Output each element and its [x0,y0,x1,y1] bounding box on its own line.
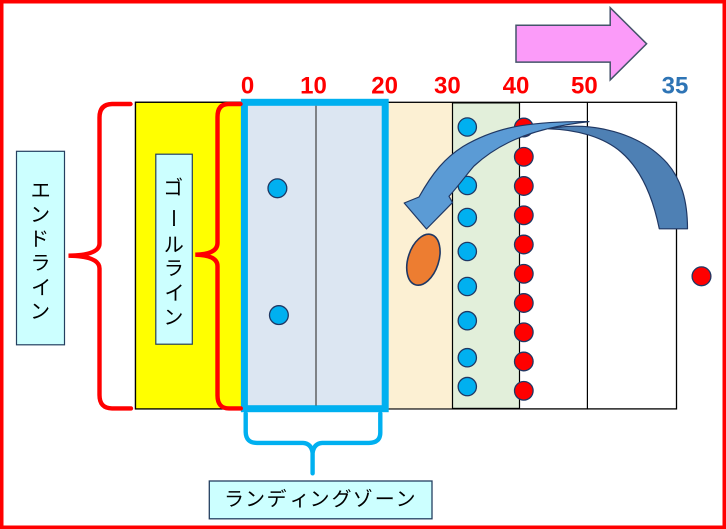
svg-text:30: 30 [434,73,461,100]
svg-text:35: 35 [662,73,689,100]
svg-text:40: 40 [503,73,530,100]
svg-text:0: 0 [241,73,254,100]
svg-text:10: 10 [300,73,327,100]
svg-text:50: 50 [571,73,598,100]
svg-text:20: 20 [371,73,398,100]
